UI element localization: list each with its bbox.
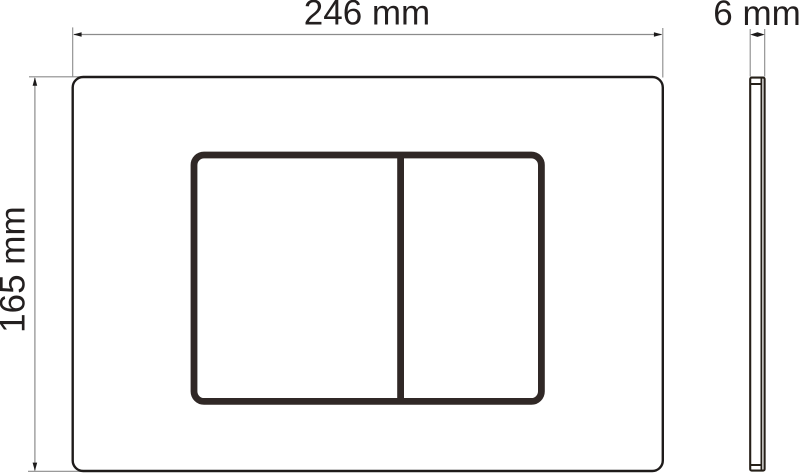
svg-text:6 mm: 6 mm — [713, 0, 800, 33]
svg-text:246 mm: 246 mm — [304, 0, 430, 33]
svg-text:165 mm: 165 mm — [0, 206, 33, 332]
